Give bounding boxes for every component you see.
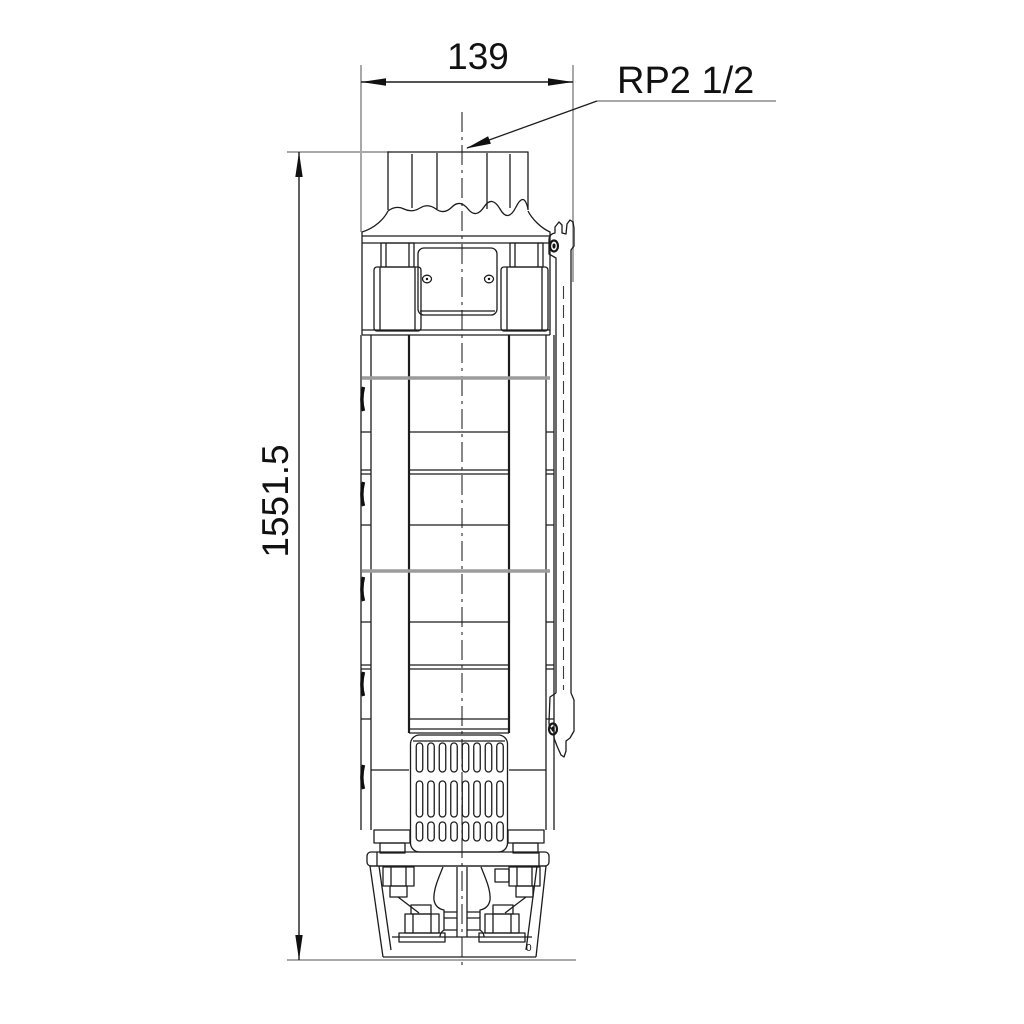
- arrowhead-left-icon: [361, 78, 386, 85]
- pump-body: 0: [361, 152, 574, 957]
- width-dimension: 139: [361, 36, 573, 86]
- nameplate: [418, 248, 497, 315]
- height-dimension: 1551.5: [255, 152, 303, 960]
- motor-flange: [367, 852, 549, 866]
- strainer-slots: [416, 743, 503, 841]
- discharge-port: [388, 152, 528, 216]
- stray-mark-label: 0: [526, 943, 532, 954]
- height-dimension-label: 1551.5: [255, 444, 296, 557]
- head-clamp-left: [374, 243, 421, 331]
- cable-guard-bottom-clip: [549, 693, 574, 757]
- suction-strainer: [411, 735, 508, 852]
- arrowhead-right-icon: [548, 78, 573, 85]
- arrowhead-leader-icon: [466, 136, 491, 148]
- connection-callout: RP2 1/2: [466, 60, 754, 149]
- arrowhead-down-icon: [295, 935, 302, 960]
- pump-head: [362, 236, 550, 335]
- head-clamp-right: [501, 243, 548, 331]
- cable-entry-block: [495, 869, 509, 882]
- chamber-stack: [361, 335, 554, 853]
- cable-guard: [549, 220, 574, 757]
- motor: 0: [367, 852, 549, 957]
- discharge-shoulder: [362, 211, 550, 236]
- pump-outline-drawing: 0 139 1551.5 RP2 1/2: [0, 0, 1024, 1024]
- thread-break-line: [388, 199, 528, 215]
- strap-feet: [374, 830, 544, 853]
- strap-buckles: [362, 387, 364, 789]
- width-dimension-label: 139: [447, 36, 509, 77]
- connection-port-label: RP2 1/2: [617, 60, 754, 102]
- arrowhead-up-icon: [295, 152, 302, 177]
